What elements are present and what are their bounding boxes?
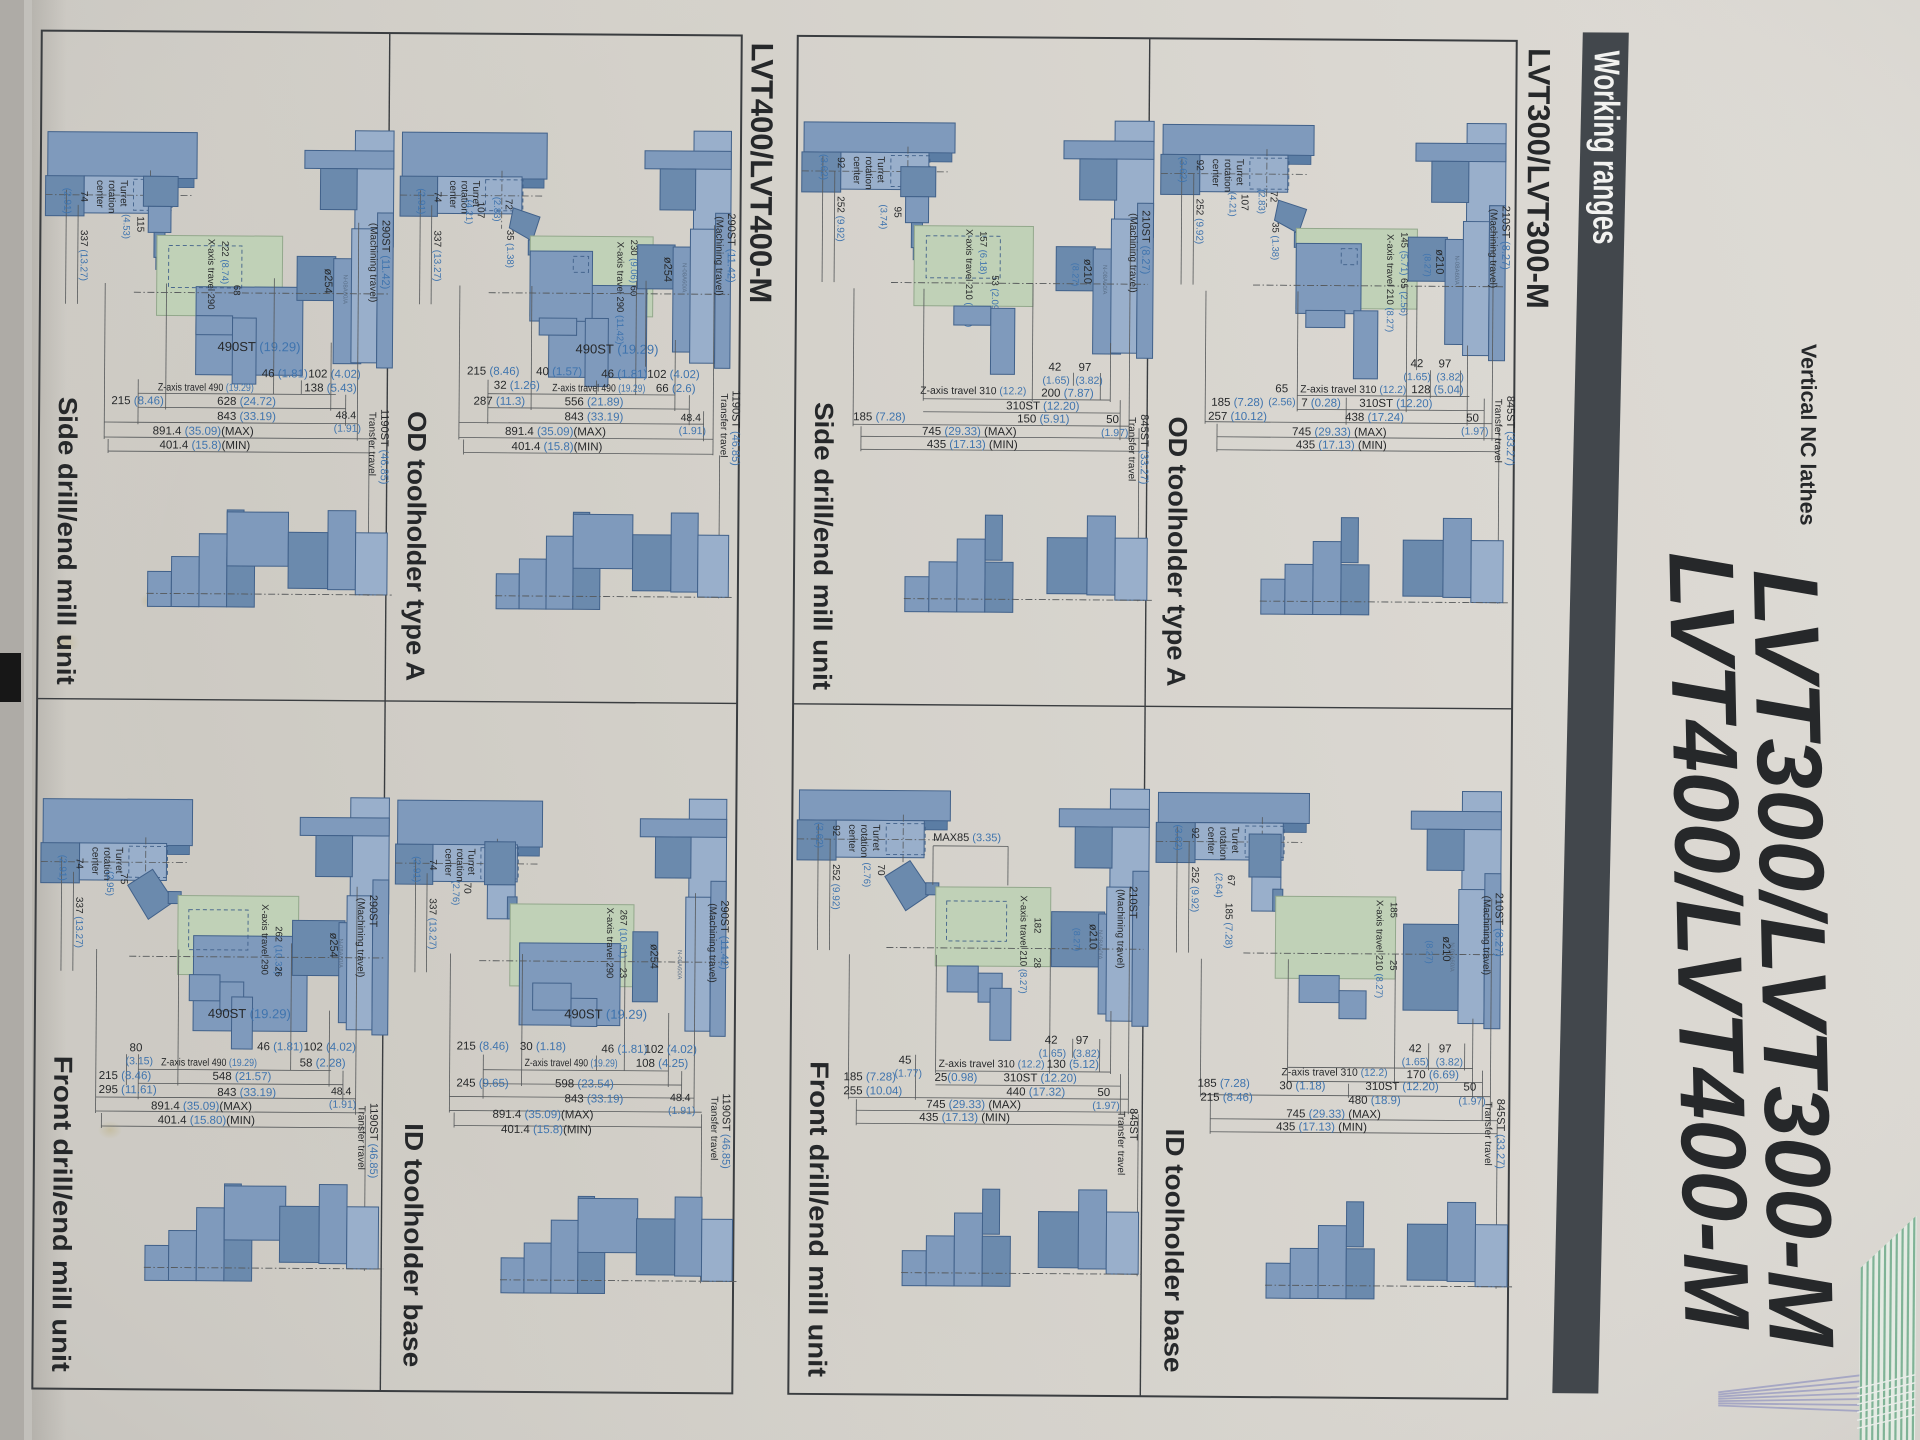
svg-text:Z-axis travel 310 (12.2): Z-axis travel 310 (12.2) [1282, 1066, 1388, 1079]
svg-text:Front drill/end mill unit: Front drill/end mill unit [802, 1061, 834, 1378]
svg-text:32 (1.26): 32 (1.26) [494, 380, 540, 392]
svg-text:401.4 (15.8)(MIN): 401.4 (15.8)(MIN) [512, 441, 603, 454]
svg-text:891.4 (35.09)(MAX): 891.4 (35.09)(MAX) [505, 426, 606, 439]
svg-text:42: 42 [1409, 1043, 1422, 1055]
svg-text:(Machining travel): (Machining travel) [1480, 896, 1492, 976]
svg-text:295 (11.61): 295 (11.61) [99, 1084, 157, 1096]
svg-text:ø210: ø210 [1081, 259, 1093, 284]
svg-text:252 (9.92): 252 (9.92) [1189, 867, 1200, 913]
svg-text:rotation: rotation [858, 824, 869, 857]
svg-text:97: 97 [1076, 1035, 1089, 1047]
svg-text:(Machining travel): (Machining travel) [1114, 889, 1126, 969]
svg-text:Turret: Turret [870, 824, 881, 851]
svg-text:310ST (12.20): 310ST (12.20) [1365, 1081, 1439, 1094]
svg-text:102 (4.02): 102 (4.02) [308, 368, 361, 380]
svg-text:OD toolholder type A: OD toolholder type A [1161, 416, 1193, 686]
svg-text:215 (8.46): 215 (8.46) [457, 1040, 510, 1052]
svg-text:7 (0.28): 7 (0.28) [1301, 397, 1341, 409]
svg-text:(3.62): (3.62) [1172, 824, 1183, 850]
svg-text:490ST (19.29): 490ST (19.29) [208, 1006, 291, 1022]
svg-text:N-08A60/A: N-08A60/A [1453, 255, 1459, 284]
svg-text:(8.27): (8.27) [1424, 940, 1434, 964]
svg-text:215 (8.46): 215 (8.46) [111, 395, 164, 407]
svg-text:745 (29.33) (MAX): 745 (29.33) (MAX) [1286, 1108, 1381, 1121]
svg-text:X-axis travel 290: X-axis travel 290 [259, 904, 270, 975]
svg-text:138 (5.43): 138 (5.43) [304, 382, 357, 394]
svg-text:(Machining travel): (Machining travel) [713, 216, 725, 296]
svg-text:46 (1.81): 46 (1.81) [262, 368, 308, 380]
svg-text:Turret: Turret [1229, 827, 1240, 854]
svg-text:(2.91): (2.91) [415, 188, 426, 214]
svg-text:LVT400/LVT400-M: LVT400/LVT400-M [1649, 551, 1767, 1333]
svg-text:157 (6.18): 157 (6.18) [977, 231, 988, 274]
svg-text:74: 74 [427, 859, 438, 871]
svg-text:185 (7.28): 185 (7.28) [1197, 1078, 1250, 1090]
svg-text:Transfer travel: Transfer travel [366, 412, 377, 476]
svg-text:(4.21): (4.21) [1227, 192, 1238, 217]
svg-text:ø210: ø210 [1433, 249, 1445, 274]
svg-text:Turret: Turret [118, 180, 129, 207]
svg-text:310ST (12.20): 310ST (12.20) [1359, 398, 1433, 411]
svg-text:72: 72 [503, 199, 514, 211]
svg-text:548 (21.57): 548 (21.57) [212, 1071, 271, 1083]
svg-text:Z-axis travel 490 (19.29): Z-axis travel 490 (19.29) [552, 382, 645, 395]
svg-text:X-axis travel 210 (8.27): X-axis travel 210 (8.27) [1373, 900, 1385, 998]
svg-text:Z-axis travel 490 (19.29): Z-axis travel 490 (19.29) [158, 381, 254, 394]
svg-text:107: 107 [475, 202, 486, 219]
svg-text:ø254: ø254 [322, 269, 334, 294]
svg-text:25(0.98): 25(0.98) [934, 1072, 977, 1084]
svg-text:480 (18.9): 480 (18.9) [1348, 1095, 1401, 1107]
svg-text:(Machining travel): (Machining travel) [1127, 213, 1139, 293]
svg-text:Front drill/end mill unit: Front drill/end mill unit [46, 1056, 78, 1373]
svg-text:290ST (11.42): 290ST (11.42) [379, 220, 391, 289]
svg-text:290ST (11.42): 290ST (11.42) [718, 900, 730, 969]
svg-text:42: 42 [1048, 362, 1061, 374]
svg-text:74: 74 [432, 191, 443, 203]
svg-text:67: 67 [1225, 875, 1236, 887]
svg-text:Transfer travel: Transfer travel [1492, 399, 1503, 463]
svg-text:75: 75 [118, 873, 129, 885]
svg-text:23: 23 [617, 968, 628, 979]
svg-text:185 (7.28): 185 (7.28) [1222, 903, 1233, 949]
svg-text:97: 97 [1078, 362, 1091, 374]
svg-text:95: 95 [892, 207, 903, 219]
svg-text:center: center [89, 847, 100, 876]
svg-text:58 (2.28): 58 (2.28) [300, 1057, 346, 1069]
svg-text:(1.91): (1.91) [668, 1105, 696, 1117]
svg-text:42: 42 [1410, 358, 1423, 370]
svg-text:Transfer travel: Transfer travel [718, 393, 729, 457]
svg-text:46 (1.81): 46 (1.81) [601, 1044, 647, 1056]
svg-text:(3.74): (3.74) [877, 204, 888, 229]
svg-text:OD toolholder type A: OD toolholder type A [400, 411, 432, 681]
svg-text:X-axis travel 210 (8.27): X-axis travel 210 (8.27) [1017, 895, 1029, 993]
svg-text:ID toolholder base: ID toolholder base [1158, 1128, 1190, 1372]
svg-text:(1.65): (1.65) [1402, 1056, 1430, 1068]
svg-text:(1.91): (1.91) [679, 425, 707, 437]
svg-text:rotation: rotation [454, 848, 465, 881]
svg-text:(2.95): (2.95) [104, 871, 115, 896]
svg-text:Turret: Turret [113, 847, 124, 874]
svg-text:(Machining travel): (Machining travel) [367, 223, 379, 303]
svg-text:70: 70 [461, 883, 472, 895]
svg-text:(1.97): (1.97) [1101, 427, 1129, 439]
svg-text:1190ST (46.85): 1190ST (46.85) [719, 1093, 732, 1169]
svg-text:401.4 (15.8)(MIN): 401.4 (15.8)(MIN) [501, 1124, 592, 1137]
svg-text:185 (7.28): 185 (7.28) [853, 411, 906, 423]
svg-text:Side drill/end mill unit: Side drill/end mill unit [807, 402, 839, 691]
svg-text:843 (33.19): 843 (33.19) [217, 1087, 276, 1099]
svg-text:46 (1.81): 46 (1.81) [257, 1041, 303, 1053]
svg-text:182: 182 [1032, 918, 1043, 934]
svg-text:255 (10.04): 255 (10.04) [843, 1085, 902, 1097]
svg-text:1190ST (46.85): 1190ST (46.85) [367, 1103, 380, 1179]
svg-text:102 (4.02): 102 (4.02) [644, 1044, 697, 1056]
svg-text:(2.91): (2.91) [57, 855, 68, 881]
svg-text:Working ranges: Working ranges [1585, 50, 1627, 244]
svg-text:845ST (33.27): 845ST (33.27) [1504, 396, 1516, 466]
svg-text:Z-axis travel 490 (19.29): Z-axis travel 490 (19.29) [161, 1056, 257, 1069]
svg-text:(1.97): (1.97) [1458, 1095, 1486, 1107]
svg-text:310ST (12.20): 310ST (12.20) [1006, 400, 1080, 413]
svg-text:35 (1.38): 35 (1.38) [1269, 222, 1280, 260]
svg-text:Z-axis travel 310 (12.2): Z-axis travel 310 (12.2) [939, 1058, 1045, 1071]
svg-text:92: 92 [1194, 160, 1205, 172]
svg-text:80: 80 [130, 1042, 143, 1054]
svg-text:337 (13.27): 337 (13.27) [431, 230, 442, 281]
svg-text:200 (7.87): 200 (7.87) [1041, 388, 1094, 400]
svg-text:(4.21): (4.21) [463, 200, 474, 225]
svg-text:215 (8.46): 215 (8.46) [467, 366, 520, 378]
svg-text:1190ST (46.85): 1190ST (46.85) [378, 409, 391, 485]
svg-text:(3.62): (3.62) [813, 822, 824, 848]
svg-text:Turret: Turret [1234, 159, 1245, 186]
svg-text:210ST (8.27): 210ST (8.27) [1139, 210, 1151, 274]
svg-text:490ST (19.29): 490ST (19.29) [576, 341, 659, 357]
svg-text:556 (21.89): 556 (21.89) [565, 396, 624, 408]
svg-text:185 (7.28): 185 (7.28) [843, 1071, 896, 1083]
svg-text:40 (1.57): 40 (1.57) [536, 366, 582, 378]
svg-text:(1.91): (1.91) [329, 1099, 357, 1111]
svg-text:rotation: rotation [106, 180, 117, 213]
svg-text:222 (8.74): 222 (8.74) [219, 241, 230, 284]
svg-text:97: 97 [1439, 1043, 1452, 1055]
svg-text:128 (5.04): 128 (5.04) [1411, 384, 1464, 396]
svg-text:115: 115 [134, 216, 145, 232]
svg-text:(8.27): (8.27) [1072, 928, 1082, 952]
svg-text:150 (5.91): 150 (5.91) [1017, 413, 1070, 425]
svg-text:745 (29.33) (MAX): 745 (29.33) (MAX) [1292, 426, 1387, 439]
svg-text:28: 28 [1031, 958, 1042, 969]
svg-text:Vertical NC lathes: Vertical NC lathes [1795, 344, 1820, 526]
svg-text:center: center [442, 848, 453, 877]
svg-text:628 (24.72): 628 (24.72) [217, 396, 276, 408]
svg-text:Transfer travel: Transfer travel [1126, 417, 1137, 481]
svg-text:65: 65 [1275, 383, 1288, 395]
svg-text:(1.97): (1.97) [1461, 425, 1489, 437]
svg-text:ø254: ø254 [648, 944, 660, 969]
svg-text:92: 92 [830, 825, 841, 837]
svg-text:74: 74 [73, 858, 84, 870]
svg-text:337 (13.27): 337 (13.27) [426, 898, 437, 949]
svg-text:97: 97 [1438, 358, 1451, 370]
svg-text:rotation: rotation [863, 156, 874, 189]
svg-text:(2.91): (2.91) [411, 856, 422, 882]
svg-text:(Machining travel): (Machining travel) [354, 898, 366, 978]
svg-text:(3.15): (3.15) [126, 1055, 154, 1067]
svg-text:35 (1.38): 35 (1.38) [504, 230, 515, 268]
svg-text:ID toolholder base: ID toolholder base [397, 1123, 429, 1367]
svg-text:401.4 (15.8)(MIN): 401.4 (15.8)(MIN) [159, 439, 250, 452]
svg-text:center: center [846, 824, 857, 853]
svg-text:891.4 (35.09)(MAX): 891.4 (35.09)(MAX) [151, 1100, 252, 1113]
svg-text:435 (17.13) (MIN): 435 (17.13) (MIN) [919, 1112, 1010, 1125]
svg-text:48.4: 48.4 [670, 1092, 691, 1104]
svg-text:745 (29.33) (MAX): 745 (29.33) (MAX) [926, 1099, 1021, 1112]
svg-text:48.4: 48.4 [681, 412, 702, 424]
svg-text:center: center [1210, 159, 1221, 188]
svg-text:(Machining travel): (Machining travel) [1487, 209, 1499, 289]
svg-text:185: 185 [1388, 902, 1399, 918]
svg-text:Z-axis travel 310 (12.2): Z-axis travel 310 (12.2) [1300, 383, 1406, 396]
svg-text:210ST (8.27): 210ST (8.27) [1499, 206, 1511, 270]
svg-text:center: center [447, 180, 458, 209]
svg-text:102 (4.02): 102 (4.02) [304, 1041, 357, 1053]
svg-text:290ST: 290ST [367, 895, 379, 928]
svg-text:290ST (11.42): 290ST (11.42) [725, 213, 737, 282]
svg-text:N-08A60/A: N-08A60/A [1448, 942, 1454, 971]
svg-text:(2.91): (2.91) [61, 188, 72, 214]
svg-text:435 (17.13) (MIN): 435 (17.13) (MIN) [1296, 439, 1387, 452]
svg-text:490ST (19.29): 490ST (19.29) [564, 1006, 647, 1022]
svg-text:Transfer travel: Transfer travel [355, 1106, 366, 1170]
svg-text:50: 50 [1097, 1087, 1110, 1099]
svg-text:440 (17.32): 440 (17.32) [1006, 1086, 1065, 1098]
svg-text:(2.83): (2.83) [491, 197, 502, 222]
svg-text:center: center [1205, 827, 1216, 856]
svg-text:Z-axis travel 490 (19.29): Z-axis travel 490 (19.29) [525, 1057, 618, 1070]
svg-text:(3.82): (3.82) [1436, 371, 1464, 383]
svg-text:252 (9.92): 252 (9.92) [1193, 199, 1204, 245]
svg-text:130 (5.12): 130 (5.12) [1047, 1059, 1100, 1071]
svg-text:LVT400/LVT400-M: LVT400/LVT400-M [743, 42, 780, 303]
svg-text:(3.62): (3.62) [818, 154, 829, 180]
svg-text:(1.77): (1.77) [894, 1068, 922, 1080]
svg-text:(3.82): (3.82) [1075, 375, 1103, 387]
svg-text:(4.53): (4.53) [120, 214, 131, 239]
svg-text:267 (10.51): 267 (10.51) [617, 910, 628, 959]
svg-text:46 (1.81): 46 (1.81) [601, 368, 647, 380]
svg-text:ø254: ø254 [661, 257, 673, 282]
svg-text:(2.64): (2.64) [1213, 873, 1224, 898]
svg-text:MAX85 (3.35): MAX85 (3.35) [933, 832, 1001, 844]
svg-text:45: 45 [899, 1055, 912, 1067]
svg-text:N-08A60/A: N-08A60/A [1096, 930, 1102, 959]
svg-text:(8.27): (8.27) [1070, 263, 1080, 287]
svg-text:438 (17.24): 438 (17.24) [1345, 412, 1404, 424]
svg-text:257 (10.12): 257 (10.12) [1208, 411, 1267, 423]
svg-text:843 (33.19): 843 (33.19) [217, 411, 276, 423]
svg-text:845ST (33.27): 845ST (33.27) [1138, 414, 1150, 484]
svg-text:210ST: 210ST [1127, 886, 1139, 919]
svg-text:(1.65): (1.65) [1403, 371, 1431, 383]
svg-text:48.4: 48.4 [336, 410, 357, 422]
svg-text:(1.91): (1.91) [334, 423, 362, 435]
svg-text:337 (13.27): 337 (13.27) [73, 897, 84, 948]
svg-text:X-axis travel 290: X-axis travel 290 [604, 908, 615, 979]
svg-text:Side drill/end mill unit: Side drill/end mill unit [51, 397, 83, 686]
svg-text:598 (23.54): 598 (23.54) [555, 1078, 614, 1090]
svg-text:Turret: Turret [875, 156, 886, 183]
svg-text:25: 25 [1387, 960, 1398, 971]
svg-text:252 (9.92): 252 (9.92) [830, 864, 841, 910]
svg-text:310ST (12.20): 310ST (12.20) [1003, 1072, 1077, 1085]
svg-text:LVT300/LVT300-M: LVT300/LVT300-M [1520, 48, 1557, 309]
svg-text:Turret: Turret [465, 849, 476, 876]
svg-text:(8.27): (8.27) [1423, 253, 1433, 277]
svg-text:1190ST (46.85): 1190ST (46.85) [729, 390, 742, 466]
svg-text:891.4 (35.09)(MAX): 891.4 (35.09)(MAX) [153, 425, 254, 438]
svg-text:108 (4.25): 108 (4.25) [636, 1058, 689, 1070]
svg-text:66 (2.6): 66 (2.6) [656, 383, 696, 395]
svg-text:92: 92 [1189, 828, 1200, 840]
svg-text:26: 26 [272, 966, 283, 977]
svg-text:845ST (33.27): 845ST (33.27) [1494, 1099, 1506, 1169]
svg-text:N-08A60/A: N-08A60/A [680, 263, 686, 292]
svg-text:252 (9.92): 252 (9.92) [834, 196, 845, 242]
svg-text:92: 92 [835, 157, 846, 169]
svg-text:rotation: rotation [1222, 159, 1233, 192]
svg-text:(2.76): (2.76) [450, 880, 461, 905]
svg-text:48.4: 48.4 [331, 1086, 352, 1098]
svg-text:843 (33.19): 843 (33.19) [565, 1093, 624, 1105]
svg-text:(2.83): (2.83) [1256, 189, 1267, 214]
svg-text:170 (6.69): 170 (6.69) [1406, 1069, 1459, 1081]
svg-text:N-08A60/A: N-08A60/A [1101, 265, 1107, 294]
svg-text:50: 50 [1466, 413, 1479, 425]
svg-text:center: center [94, 180, 105, 209]
svg-text:72: 72 [1268, 191, 1279, 203]
svg-text:center: center [851, 156, 862, 185]
svg-text:215 (8.46): 215 (8.46) [99, 1070, 152, 1082]
svg-text:745 (29.33) (MAX): 745 (29.33) (MAX) [922, 426, 1017, 439]
svg-text:Transfer travel: Transfer travel [708, 1096, 719, 1160]
svg-text:50: 50 [1106, 414, 1119, 426]
svg-text:Transfer travel: Transfer travel [1115, 1111, 1126, 1175]
svg-text:490ST (19.29): 490ST (19.29) [218, 339, 301, 355]
svg-text:rotation: rotation [1217, 827, 1228, 860]
svg-text:X-axis travel 210 (8.27): X-axis travel 210 (8.27) [1384, 234, 1396, 332]
svg-text:185 (7.28): 185 (7.28) [1211, 397, 1264, 409]
svg-text:435 (17.13) (MIN): 435 (17.13) (MIN) [1276, 1121, 1367, 1134]
svg-text:X-axis travel 290 (11.42): X-axis travel 290 (11.42) [614, 242, 626, 345]
svg-text:X-axis travel 290: X-axis travel 290 [205, 239, 216, 310]
svg-text:287 (11.3): 287 (11.3) [473, 396, 525, 408]
svg-text:N-08A60/A: N-08A60/A [676, 950, 682, 979]
svg-text:401.4 (15.80)(MIN): 401.4 (15.80)(MIN) [158, 1114, 255, 1127]
svg-text:(2.76): (2.76) [861, 862, 872, 887]
svg-text:70: 70 [875, 864, 886, 876]
svg-text:210ST (8.27): 210ST (8.27) [1492, 893, 1504, 957]
svg-text:30 (1.18): 30 (1.18) [1279, 1080, 1325, 1092]
svg-text:(3.82): (3.82) [1436, 1056, 1464, 1068]
svg-text:845ST: 845ST [1127, 1108, 1139, 1141]
svg-text:74: 74 [78, 191, 89, 203]
svg-text:(Machining travel): (Machining travel) [706, 903, 718, 983]
svg-text:(3.62): (3.62) [1177, 157, 1188, 183]
svg-text:N-08A60/A: N-08A60/A [337, 939, 343, 968]
svg-text:42: 42 [1045, 1035, 1058, 1047]
svg-text:68: 68 [231, 285, 242, 296]
svg-text:30 (1.18): 30 (1.18) [520, 1041, 566, 1053]
svg-text:(1.65): (1.65) [1042, 375, 1070, 387]
svg-text:843 (33.19): 843 (33.19) [564, 411, 623, 423]
svg-text:245 (9.65): 245 (9.65) [456, 1077, 509, 1089]
svg-text:N-08A60/A: N-08A60/A [341, 275, 347, 304]
svg-text:107: 107 [1239, 194, 1250, 211]
svg-text:337 (13.27): 337 (13.27) [78, 230, 89, 281]
svg-text:891.4 (35.09)(MAX): 891.4 (35.09)(MAX) [492, 1109, 593, 1122]
svg-text:(2.56): (2.56) [1268, 396, 1296, 408]
svg-text:Z-axis travel 310 (12.2): Z-axis travel 310 (12.2) [920, 385, 1026, 398]
svg-text:102 (4.02): 102 (4.02) [647, 369, 700, 381]
svg-text:215 (8.46): 215 (8.46) [1200, 1092, 1253, 1104]
svg-text:Transfer travel: Transfer travel [1482, 1102, 1493, 1166]
svg-text:435 (17.13) (MIN): 435 (17.13) (MIN) [927, 439, 1018, 452]
svg-text:50: 50 [1463, 1082, 1476, 1094]
